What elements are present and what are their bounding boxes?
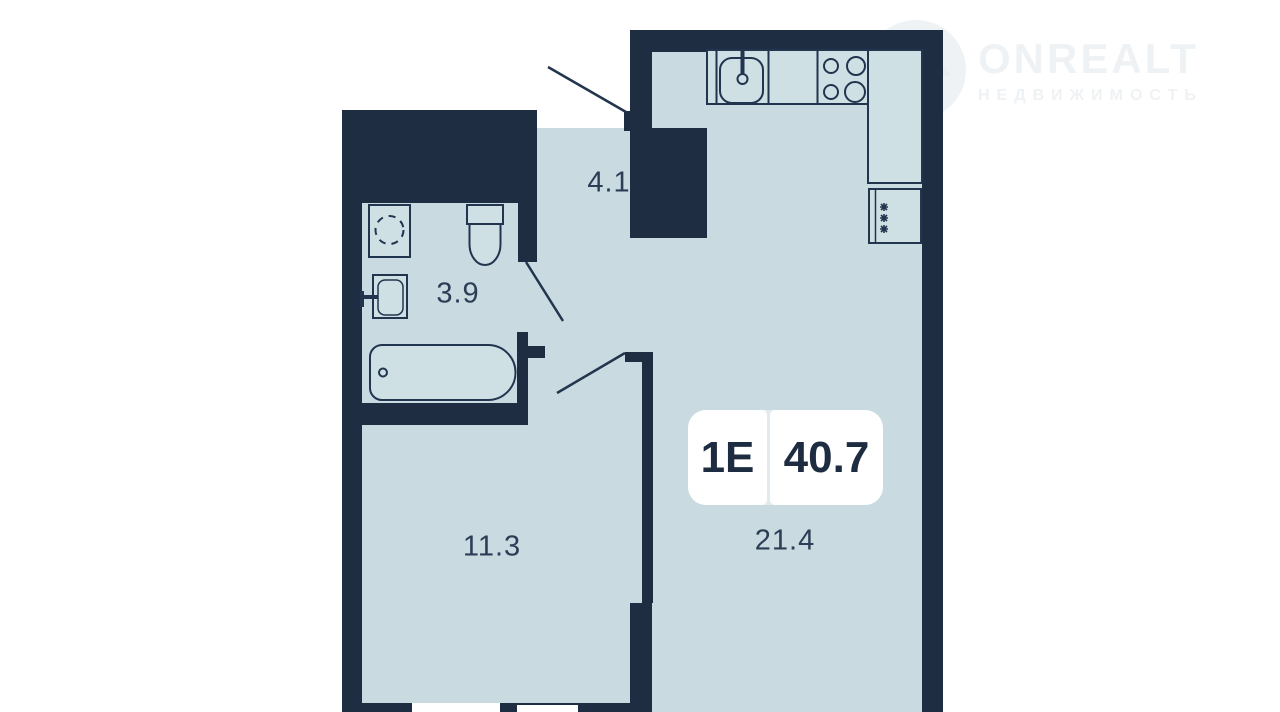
snowflake-icon <box>880 203 888 233</box>
apartment-badge: 1E 40.7 <box>688 410 883 505</box>
room-label-kitchen-living: 21.4 <box>755 525 815 558</box>
onrealt-logo: ONREALT НЕДВИЖИМОСТЬ <box>978 38 1203 105</box>
apartment-area: 40.7 <box>784 433 870 483</box>
bathroom-sink-icon <box>360 275 407 318</box>
kitchen-counter <box>707 50 922 183</box>
apartment-area-badge: 40.7 <box>770 410 883 505</box>
floor-plan-page: 4.1 3.9 11.3 21.4 1E 40.7 ONREALT НЕДВИЖ… <box>0 0 1280 712</box>
fridge-icon <box>869 189 921 243</box>
entry-door-swing <box>548 67 626 112</box>
apartment-type: 1E <box>701 433 755 483</box>
room-label-room: 11.3 <box>463 531 521 564</box>
bathroom-door-swing <box>526 262 563 321</box>
fixtures-layer <box>0 0 1280 712</box>
room-door-swing <box>557 353 625 393</box>
toilet-icon <box>467 205 503 265</box>
apartment-type-badge: 1E <box>688 410 767 505</box>
bathtub-icon <box>370 345 516 400</box>
washing-machine-icon <box>369 205 410 257</box>
logo-brand-text: ONREALT <box>978 38 1203 80</box>
room-label-bathroom: 3.9 <box>436 278 479 311</box>
logo-tagline-text: НЕДВИЖИМОСТЬ <box>978 87 1203 105</box>
room-label-hallway: 4.1 <box>587 167 630 200</box>
